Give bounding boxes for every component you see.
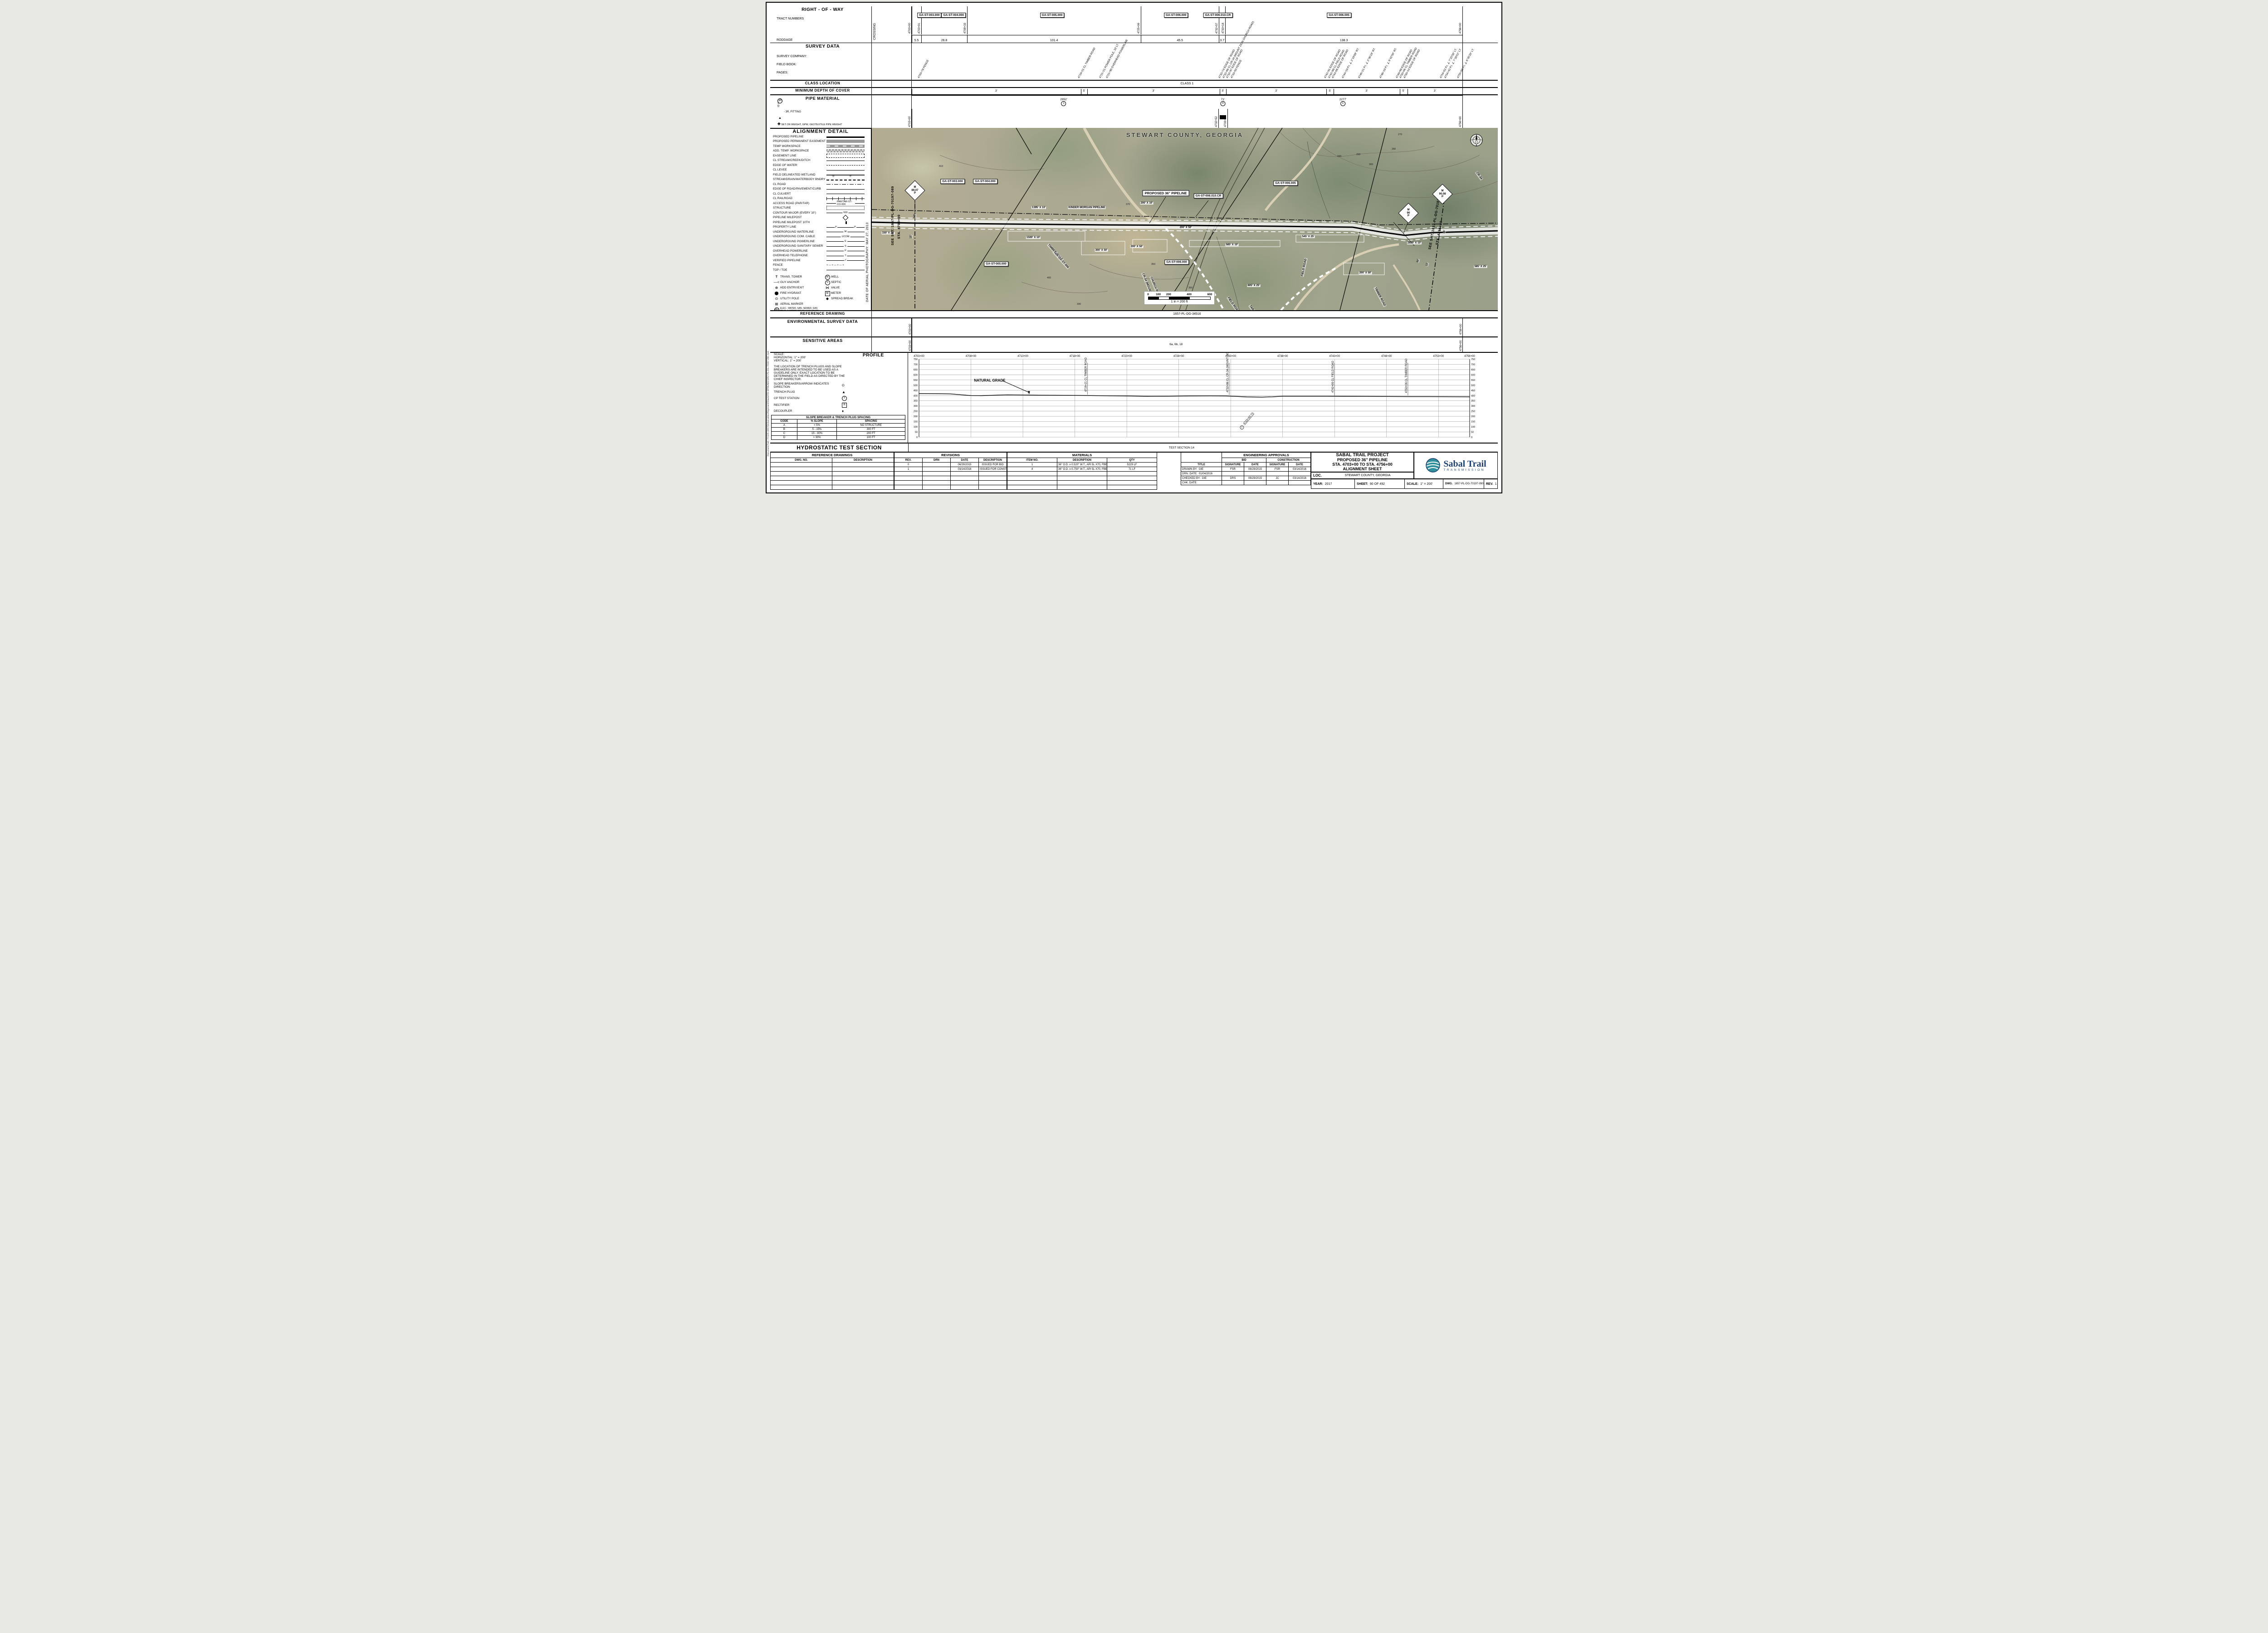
pipeline-swatch-icon (826, 135, 865, 139)
depth-boundary (912, 89, 912, 94)
contour-label: 360 (1188, 287, 1193, 289)
guy-anchor-icon: —< (773, 280, 780, 284)
svg-text:500: 500 (1471, 384, 1475, 387)
row1-labels: RIGHT - OF - WAY TRACT NUMBERS RODDAGE (774, 6, 872, 43)
pipe-station-line (912, 109, 912, 129)
trench-arrow-glyph: ▲ (778, 117, 782, 120)
profile-symbol-row: DECOUPLER♦ (774, 409, 908, 413)
pipe-material-row: PIPE MATERIAL 3R ID # - 3R, FITTING ▲ ✚ … (770, 94, 1498, 128)
map-scalebar: 0100200400600 1 in = 200 ft (1144, 291, 1215, 305)
swatch-tag: PAR/TAR-ST-CO-000 (836, 200, 855, 206)
survey-data-row: SURVEY DATA SURVEY COMPANY: FIELD BOOK: … (770, 43, 1498, 80)
legend-items: PROPOSED PIPELINEPROPOSED PERMANENT EASE… (770, 134, 871, 273)
workspace-dimension-label: 200' X 50' (1179, 226, 1193, 229)
legend-item-label: OVERHEAD POWERLINE (773, 249, 826, 253)
swatch-line (826, 270, 865, 270)
station-label: 4703+91 (918, 23, 921, 34)
sensitive-areas-label: SENSITIVE AREAS (774, 338, 871, 343)
depth-boundary (1408, 89, 1408, 94)
dashline-swatch-icon (826, 163, 865, 167)
depth-of-cover-content: 3'5'3'5'3'5'3'5'3' (912, 88, 1462, 94)
lineletter-swatch-icon: P (826, 249, 865, 253)
legend-item: UNDERGROUND WATERLINEW (770, 229, 871, 234)
svg-text:4742+99 CL FIELD ROAD: 4742+99 CL FIELD ROAD (1332, 361, 1334, 393)
decoupler-icon: ♦ (842, 409, 844, 413)
legend-item: UNDERGROUND POWERLINEE (770, 239, 871, 244)
scalebar-segment (1190, 297, 1210, 299)
svg-text:4728+00: 4728+00 (1173, 355, 1184, 358)
tract-boundary-line (967, 6, 968, 34)
depth-boundary (1087, 89, 1088, 94)
legend-item-label: STREAM/DRAIN/WATERBODY BNDRY (773, 178, 826, 181)
svg-text:150: 150 (914, 421, 918, 424)
legend-item-label: PROPOSED PIPELINE (773, 135, 826, 138)
legend-item-label: ACCESS ROAD (PAR/TAR) (773, 202, 826, 205)
legend-item-label: ADD. TEMP. WORKSPACE (773, 149, 826, 152)
lineletter-swatch-icon: S (826, 244, 865, 248)
pipe-station-label: 4703+00 (909, 116, 911, 127)
station-label: 4708+33 (964, 23, 967, 34)
company-logo: Sabal Trail TRANSMISSION (1414, 452, 1498, 479)
profile-note: THE LOCATION OF TRENCH PLUGS AND SLOPE B… (770, 365, 851, 381)
svg-text:4743+00: 4743+00 (1329, 355, 1340, 358)
legend-item: CL RAILROAD (770, 196, 871, 201)
lineletter-swatch-icon: T (826, 253, 865, 258)
county-title: STEWART COUNTY, GEORGIA (1126, 132, 1243, 138)
contour-label: 410 (939, 165, 943, 168)
matchline-label: SEE SHT. 1657-PL-DG-70197-089 (890, 186, 894, 245)
materials-table: MATERIALSITEM NO.DESCRIPTIONQTY136" O.D.… (1007, 452, 1157, 490)
legend-item-label: FIELD DELINEATED WETLAND (773, 173, 826, 176)
env-station-line (912, 318, 912, 337)
thinline-swatch-icon (826, 268, 865, 272)
permeas-swatch-icon (826, 139, 865, 143)
contour-label: 290 (1356, 153, 1360, 156)
legend-item: PROPOSED PERMANENT EASEMENT (770, 139, 871, 144)
station-label: 4703+00 (909, 23, 911, 34)
tract-boundary-line (921, 6, 922, 34)
legend-item-label: PROPOSED PERMANENT EASEMENT (773, 140, 826, 143)
environmental-row: ENVIRONMENTAL SURVEY DATA 4703+004756+00 (770, 317, 1498, 336)
reference-drawing-row: REFERENCE DRAWING 1657-PL-DG-34516 (770, 310, 1498, 317)
milepost-line: P (1442, 195, 1443, 199)
right-of-way-row: RIGHT - OF - WAY TRACT NUMBERS RODDAGE C… (770, 6, 1498, 43)
profile-symbol-row: TRENCH PLUG▲ (774, 390, 908, 394)
roddage-value: 26.8 (941, 39, 948, 42)
aerial-date-label: DATE OF AERIAL PHOTOGRAPHY: MAY 27, 2013 (866, 222, 869, 302)
profile-symbol-row: RECTIFIERR (774, 402, 908, 408)
p-symbol: P (854, 226, 856, 229)
depth-of-cover-label: MINIMUM DEPTH OF COVER (774, 88, 871, 93)
project-line4: ALIGNMENT SHEET (1311, 467, 1413, 471)
legend-item: VERIFIED PIPELINE∕∕ (770, 258, 871, 263)
svg-text:4708+00: 4708+00 (966, 355, 977, 358)
sens-station-line (912, 337, 912, 353)
depth-value: 5' (1083, 89, 1085, 93)
legend-item-label: PIPELINE MILEPOST 10TH (773, 221, 826, 224)
workspace-dimension-label: 200' X 50' (1130, 245, 1144, 248)
structure-swatch-icon (826, 206, 865, 210)
trans-tower-icon: Ŧ (773, 275, 780, 279)
svg-text:700: 700 (1471, 363, 1475, 366)
svg-text:4718+00: 4718+00 (1070, 355, 1080, 358)
pipe-station-label: 4756+00 (1459, 116, 1462, 127)
lineletter-swatch-icon: 600 (826, 211, 865, 215)
svg-text:600: 600 (1471, 374, 1475, 376)
legend-title: ALIGNMENT DETAIL (770, 129, 871, 134)
spacing-table: SLOPE BREAKER & TRENCH PLUG SPACINGCODE%… (771, 415, 905, 440)
swatch-tag: P (844, 249, 847, 252)
tract-strip: 4703+004703+914708+334725+064732+574733+… (912, 6, 1462, 43)
workspace-dimension-label: 1500' X 10' (1026, 236, 1041, 239)
workspace-dimension-label: 545' X 25' (1302, 235, 1315, 238)
workspace-dimension-label: 1395' X 10' (1031, 206, 1046, 209)
hdd-entry-exit-icon: ⊕ (773, 286, 780, 290)
profile-notes: SCALE: HORIZONTAL: 1" = 200' VERTICAL: 1… (770, 352, 908, 443)
lineletter-swatch-icon: E (826, 239, 865, 244)
swatch-line (826, 161, 865, 161)
septic-icon: S (824, 280, 831, 285)
roddage-separator (1225, 35, 1226, 43)
profile-symbol-label: CP TEST STATION (774, 397, 842, 400)
legend-item-label: CL ROAD (773, 183, 826, 186)
symbol-row: —<GUY ANCHOR (770, 280, 821, 285)
aerial-marker-icon: ⊠ (773, 302, 780, 306)
symbol-label: WELL (831, 275, 839, 278)
milepost-text: M90P (1402, 206, 1415, 220)
svg-text:650: 650 (1471, 369, 1475, 371)
hydrostatic-row: HYDROSTATIC TEST SECTION TEST SECTION 14 (770, 443, 1498, 452)
svg-text:400: 400 (914, 395, 918, 397)
milepost-line: P (1408, 214, 1409, 218)
swatch-line (826, 189, 865, 190)
map-tract-box: GA-ST-003.000 (940, 179, 965, 184)
workspace-dimension-label: 300' X 50' (1095, 249, 1108, 252)
crossing-cell: CROSSING (872, 6, 912, 43)
symbol-row: SSEPTIC (821, 280, 871, 285)
depth-value: 3' (995, 89, 997, 93)
reference-drawing-label: REFERENCE DRAWING (774, 312, 871, 316)
svg-text:250: 250 (914, 410, 918, 413)
pipe-material-label: PIPE MATERIAL (774, 96, 871, 101)
roddage-value: 45.5 (1177, 39, 1183, 42)
legend-item: CL LEVEE (770, 168, 871, 173)
railroad-swatch-icon (826, 196, 865, 200)
svg-text:600: 600 (914, 374, 918, 376)
depth-value: 3' (1153, 89, 1155, 93)
roddage-divider (912, 35, 1462, 35)
contour-label: 370 (1126, 203, 1130, 206)
scalebar-segment (1159, 297, 1169, 299)
legend-item-label: UNDERGROUND WATERLINE (773, 230, 826, 234)
profile-symbols: SLOPE BREAKERS/ARROW INDICATES DIRECTION… (770, 382, 908, 413)
swatch-line (826, 180, 865, 180)
profile-symbol-row: CP TEST STATIONT (774, 395, 908, 401)
reference-drawing-value: 1657-PL-DG-34516 (1173, 312, 1201, 316)
svg-text:500: 500 (914, 384, 918, 387)
symbol-row: MMETER (821, 291, 871, 296)
pipe-station-label: 4732+52 (1215, 116, 1218, 127)
depth-value: 3' (1365, 89, 1368, 93)
legend-item: TEMP WORKSPACE (770, 144, 871, 149)
hydrostatic-label: HYDROSTATIC TEST SECTION (770, 444, 908, 451)
svg-text:200: 200 (914, 415, 918, 418)
legend-item-label: UNDERGROUND POWERLINE (773, 240, 826, 243)
symbol-row: ⊠AERIAL MARKER (770, 302, 821, 307)
legend-item: PIPELINE MILEPOST 10TH (770, 220, 871, 225)
legend-item-label: PROPERTY LINE (773, 225, 826, 229)
legend-item-label: EASEMENT LINE (773, 154, 826, 157)
svg-text:350: 350 (1471, 400, 1475, 403)
roddage-value: 138.3 (1340, 39, 1348, 42)
depth-value: 3' (1434, 89, 1436, 93)
scalebar-segment (1169, 297, 1189, 299)
legend-item: OVERHEAD TELEPHONET (770, 253, 871, 258)
swatch-line (826, 227, 865, 228)
pipe-item-number: 1 (1340, 101, 1345, 106)
depth-boundary (1334, 89, 1334, 94)
slope-breakers-arrow-indicates-direction-icon: ⦶ (842, 383, 845, 388)
legend-item: ADD. TEMP. WORKSPACE (770, 149, 871, 154)
svg-text:750: 750 (1471, 358, 1475, 361)
legend-item-label: CL STREAM/CREEK/DITCH (773, 159, 826, 162)
legend-item: TOP / TOE (770, 268, 871, 273)
survey-company-label: SURVEY COMPANY: (777, 55, 807, 58)
tract-boundary-line (912, 6, 912, 34)
tract-boundary-line (1225, 6, 1226, 34)
legend-item: STRUCTURE (770, 206, 871, 211)
approvals-table: ENGINEERING APPROVALS BIDCONSTRUCTIONTIT… (1181, 452, 1311, 485)
pipe-baseline (912, 95, 1462, 96)
legend-item-label: EDGE OF WATER (773, 164, 826, 167)
symbol-label: VALVE (831, 286, 840, 289)
svg-text:100: 100 (1471, 426, 1475, 429)
tract-number-box: GA-ST-003.000 (917, 13, 942, 18)
legend-item-label: FENCE (773, 263, 826, 267)
legend-item-label: EDGE OF ROAD/PAVEMENT/CURB (773, 187, 826, 190)
swatch-tag: T (844, 254, 847, 257)
pipe-material-labels: PIPE MATERIAL 3R ID # - 3R, FITTING ▲ ✚ … (774, 95, 872, 128)
swatch-tag: ∕∕ (844, 259, 847, 262)
workspace-dimension-label: 605' X 25' (1247, 284, 1261, 287)
thinline-swatch-icon (826, 158, 865, 162)
swatch-tag: S (844, 245, 847, 248)
profile-symbol-label: RECTIFIER (774, 404, 842, 407)
matchline-label: STA. 4703+00 (897, 214, 901, 239)
addtempws-swatch-icon (826, 149, 865, 153)
survey-callouts: 4703+78 FENCE4719+21 CL TIMBER ROAD4721+… (912, 43, 1462, 80)
workspace-dimension-label: 2880' X 10' (1407, 242, 1422, 244)
legend-item: CL ROAD (770, 182, 871, 187)
p-symbol: P (835, 226, 837, 229)
legend-item-label: CONTOUR MAJOR (EVERY 10') (773, 211, 826, 214)
symbol-label: FIRE HYDRANT (780, 292, 802, 295)
legend-item: CL CULVERT (770, 191, 871, 196)
rectifier-icon: R (842, 402, 847, 408)
lineletter-swatch-icon: ∕∕ (826, 258, 865, 263)
milepost-text: M89.07P (908, 184, 922, 197)
spread-break-icon: ◆ (824, 297, 831, 301)
profile-symbol-label: TRENCH PLUG (774, 390, 842, 394)
swatch-tag: 600 (842, 211, 848, 214)
mp10-tick-icon (846, 221, 847, 224)
scalebar-tick: 400 (1187, 293, 1192, 296)
cp-test-station-icon: T (842, 395, 847, 401)
pipe-segment-label: 2277'1 (1339, 98, 1347, 106)
legend-item-label: CL CULVERT (773, 192, 826, 195)
profile-title: PROFILE (839, 353, 908, 362)
svg-text:750: 750 (914, 358, 918, 361)
roddage-separator (967, 35, 968, 43)
symbol-label: SEPTIC (831, 281, 841, 284)
class-location-label: CLASS LOCATION (774, 81, 871, 85)
roddage-value: 101.4 (1050, 39, 1058, 42)
swatch-line (826, 165, 865, 166)
pipe-station-label: 4733+23 (1224, 116, 1227, 127)
legend-item-label: PIPELINE MILEPOST (773, 216, 826, 219)
legend-item-label: STRUCTURE (773, 206, 826, 210)
legend-item: CL STREAM/CREEK/DITCH (770, 158, 871, 163)
symbol-row: ⊙UTILITY POLE (770, 296, 821, 302)
document-path-label: Document Path: H:\GIS-1657\Deliverables\… (767, 351, 770, 456)
project-line1: SABAL TRAIL PROJECT (1311, 453, 1413, 458)
profile-symbol-label: DECOUPLER (774, 409, 842, 413)
hydrostatic-value: TEST SECTION 14 (1169, 446, 1194, 449)
workspace-dimension-label: 585' X 25' (1474, 265, 1487, 268)
roddage-separator (921, 35, 922, 43)
legend-item: OVERHEAD POWERLINEP (770, 249, 871, 253)
symbol-row: ◆SPREAD BREAK (821, 296, 871, 302)
pipe-fitting-label: - 3R, FITTING (784, 111, 801, 113)
milepost-diamond-icon (843, 214, 849, 220)
svg-text:300: 300 (1471, 405, 1475, 408)
swatch-tag: W (843, 230, 847, 233)
crossing-label: CROSSING (873, 23, 876, 40)
legend-item: ACCESS ROAD (PAR/TAR)PAR/TAR-ST-CO-000 (770, 201, 871, 206)
tract-boundary-line (1141, 6, 1141, 34)
svg-text:0: 0 (1471, 436, 1472, 439)
legend-item: EASEMENT LINE (770, 153, 871, 158)
profile-symbol-label: SLOPE BREAKERS/ARROW INDICATES DIRECTION (774, 382, 842, 389)
profile-chart-svg: 0050501001001501502002002502503003003503… (908, 352, 1498, 443)
symbol-row: ⬤FIRE HYDRANT (770, 291, 821, 296)
project-line3: STA. 4703+00 TO STA. 4756+00 (1311, 462, 1413, 467)
trench-plug-icon: ▲ (842, 390, 846, 394)
legend-item: FIELD DELINEATED WETLANDⓌⓂ (770, 172, 871, 177)
svg-text:4713+00: 4713+00 (1017, 355, 1028, 358)
utility-pole-icon: ⊙ (773, 297, 780, 301)
pipe-id-label: ID # (777, 102, 780, 107)
legend-item-label: UNDERGROUND SANITARY SEWER (773, 244, 826, 248)
svg-text:4738+00: 4738+00 (1277, 355, 1288, 358)
station-label: 4732+57 (1216, 23, 1218, 34)
pipe-segment-label: 2952'1 (1060, 98, 1067, 106)
roddage-value: 3.7 (1220, 39, 1224, 42)
symbol-row: MHELEC., WATER, SAN. SEWER, GAS TELE. & … (770, 307, 821, 311)
survey-callout: 4719+21 CL TIMBER ROAD (1078, 47, 1096, 79)
swatch-box (826, 206, 865, 210)
svg-text:4732+86 CL CR-34 (MOUNT ZION C: 4732+86 CL CR-34 (MOUNT ZION CHURCH ROAD… (1227, 352, 1229, 392)
tract-number-box: GA-ST-004.000 (941, 13, 966, 18)
dashdot-swatch-icon (826, 182, 865, 186)
workspace-dimension-label: 200' X 10' (1140, 202, 1154, 205)
svg-text:4753+00: 4753+00 (1433, 355, 1444, 358)
mp10-swatch-icon (826, 220, 865, 224)
svg-text:NATURAL GRADE: NATURAL GRADE (974, 378, 1006, 382)
roddage-value: 5.5 (914, 39, 919, 42)
profile-scale-note: SCALE: HORIZONTAL: 1" = 200' VERTICAL: 1… (770, 353, 839, 362)
offset-dimension-label: 15' (910, 235, 913, 239)
tempws-swatch-icon (826, 144, 865, 148)
svg-text:50: 50 (915, 431, 918, 434)
symbol-label: METER (831, 292, 841, 295)
legend-item: EDGE OF ROAD/PAVEMENT/CURB (770, 187, 871, 192)
swatch-tag: UCOM (841, 235, 850, 238)
pipe-item-number: 4 (1220, 101, 1225, 106)
workspace-dimension-label: KINDER MORGAN PIPELINE (1068, 206, 1105, 209)
lineletter-swatch-icon: UCOM (826, 234, 865, 239)
station-label: 4725+06 (1138, 23, 1140, 34)
symbol-label: UTILITY POLE (780, 297, 799, 300)
legend-item: PROPERTY LINEPP (770, 225, 871, 230)
milepost-swatch-icon (826, 215, 865, 219)
svg-text:450: 450 (914, 390, 918, 392)
survey-callout: 4746+21 P.I. ∠ 2°36'19" RT. (1358, 47, 1376, 79)
symbol-label: GUY ANCHOR (780, 281, 799, 284)
depth-boundary (1326, 89, 1327, 94)
svg-text:150: 150 (1471, 421, 1475, 424)
symbol-label: TRANS. TOWER (780, 275, 802, 278)
survey-callout: 4703+78 FENCE (918, 59, 930, 79)
environmental-label: ENVIRONMENTAL SURVEY DATA (774, 319, 871, 324)
depth-value: 5' (1329, 89, 1331, 93)
svg-text:100: 100 (914, 426, 918, 429)
contour-label: 390 (1077, 303, 1081, 306)
svg-text:450: 450 (1471, 390, 1475, 392)
workspace-dimension-label: 585' X 10' (1226, 244, 1239, 246)
pipe-station-line (1227, 109, 1228, 129)
depth-value: 3' (1275, 89, 1277, 93)
roddage-separator (1141, 35, 1141, 43)
svg-text:4733+50 TS: 4733+50 TS (1243, 412, 1255, 425)
location-row: LOC. STEWART COUNTY, GEORGIA (1311, 472, 1414, 479)
contour-label: 400 (1047, 277, 1051, 279)
legend-item-label: CL RAILROAD (773, 197, 826, 200)
svg-text:4719+21 CL TIMBER ROAD: 4719+21 CL TIMBER ROAD (1085, 357, 1087, 392)
legend-item: STREAM/DRAIN/WATERBODY BNDRY (770, 177, 871, 182)
symbol-label: ELEC., WATER, SAN. SEWER, GAS TELE. & ST… (780, 307, 821, 311)
right-of-way-title: RIGHT - OF - WAY (774, 7, 871, 12)
map-tract-box: GA-ST-006.010.CR (1194, 194, 1223, 199)
sens-station-label: 4703+00 (909, 340, 912, 351)
meter-icon: M (824, 291, 831, 296)
pipe-segment-label: 71'4 (1220, 98, 1225, 106)
field-book-label: FIELD BOOK: (777, 63, 797, 66)
scalebar-segment (1149, 297, 1159, 299)
svg-text:250: 250 (1471, 410, 1475, 413)
symbol-label: SPREAD BREAK (831, 297, 853, 300)
scalebar-tick: 100 (1156, 293, 1161, 296)
swatch-tag: E (844, 240, 847, 243)
depth-boundary (1220, 89, 1220, 94)
station-label: 4733+18 (1222, 23, 1225, 34)
map-tract-box: GA-ST-006.005 (1273, 181, 1298, 186)
pipe-material-content: 2952'171'42277'14703+004732+524733+23475… (912, 95, 1462, 128)
tract-boundary-line (1219, 6, 1219, 34)
pipe-weight-label: ✚ SET ON WEIGHT, GPW, GEOTEXTILE PIPE WE… (777, 122, 868, 126)
depth-boundary (1081, 89, 1081, 94)
symbol-row: ⊕HDD ENTRY/EXIT (770, 285, 821, 291)
